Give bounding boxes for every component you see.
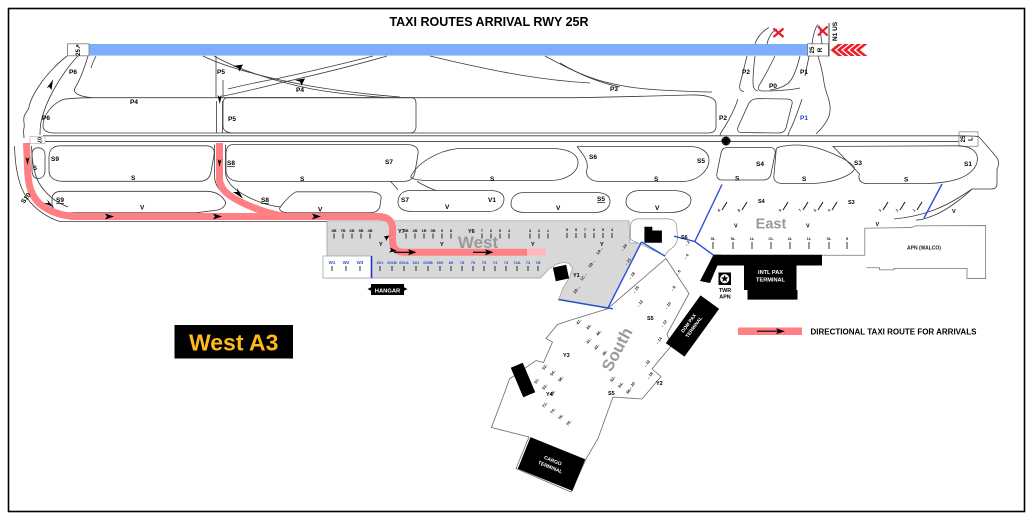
svg-text:1L: 1L	[750, 236, 755, 241]
svg-text:0L: 0L	[827, 236, 832, 241]
svg-text:S3: S3	[848, 200, 855, 206]
svg-text:West A3: West A3	[189, 330, 278, 356]
svg-text:6B: 6B	[349, 228, 354, 233]
svg-text:V: V	[140, 205, 145, 212]
svg-text:S: S	[131, 175, 136, 182]
svg-text:600: 600	[437, 260, 444, 265]
svg-text:4B: 4B	[367, 228, 372, 233]
svg-text:S9: S9	[51, 156, 59, 163]
svg-text:L: L	[969, 137, 975, 141]
svg-text:8B: 8B	[331, 228, 336, 233]
svg-text:Y1: Y1	[573, 273, 580, 279]
svg-text:V: V	[876, 222, 880, 228]
svg-text:S: S	[654, 176, 659, 183]
svg-text:601B: 601B	[387, 260, 397, 265]
svg-text:V: V	[655, 205, 660, 212]
svg-text:89: 89	[449, 260, 454, 265]
svg-text:Y2: Y2	[656, 381, 663, 387]
svg-text:V: V	[445, 204, 450, 211]
svg-text:Y7: Y7	[398, 229, 405, 235]
svg-text:P0: P0	[769, 83, 777, 90]
svg-text:600B: 600B	[423, 260, 433, 265]
svg-text:1L: 1L	[807, 236, 812, 241]
svg-text:S5: S5	[647, 316, 654, 322]
svg-text:P4: P4	[296, 87, 304, 94]
svg-text:TERMINAL: TERMINAL	[756, 278, 785, 284]
svg-text:S8: S8	[227, 160, 235, 167]
svg-text:9L: 9L	[711, 236, 716, 241]
svg-text:2B: 2B	[412, 228, 417, 233]
svg-text:East: East	[756, 217, 787, 233]
svg-text:S4: S4	[756, 161, 764, 168]
svg-text:73: 73	[504, 260, 509, 265]
svg-text:APN: APN	[719, 295, 730, 301]
svg-text:75: 75	[482, 260, 487, 265]
svg-text:S: S	[735, 176, 740, 183]
svg-text:P5: P5	[228, 116, 236, 123]
svg-text:P1: P1	[800, 115, 808, 122]
svg-text:P2: P2	[719, 115, 727, 122]
svg-text:S6: S6	[589, 154, 597, 161]
svg-text:V: V	[734, 224, 738, 230]
svg-text:S: S	[490, 176, 495, 183]
svg-text:Y: Y	[440, 242, 444, 248]
svg-text:S7: S7	[385, 159, 393, 166]
svg-text:P5: P5	[217, 69, 225, 76]
svg-text:V: V	[806, 224, 810, 230]
svg-text:CL: CL	[768, 236, 774, 241]
svg-text:S5: S5	[697, 158, 705, 165]
svg-text:5L: 5L	[731, 236, 736, 241]
svg-text:601: 601	[377, 260, 384, 265]
svg-text:S: S	[904, 177, 909, 184]
svg-text:V1: V1	[488, 197, 496, 204]
svg-text:601A: 601A	[399, 260, 409, 265]
svg-text:S3: S3	[854, 160, 862, 167]
svg-text:TWR: TWR	[719, 288, 731, 294]
svg-text:V: V	[556, 205, 561, 212]
svg-text:S: S	[300, 176, 305, 183]
svg-text:25↗: 25↗	[76, 44, 82, 56]
svg-text:Y4: Y4	[546, 392, 554, 398]
svg-text:TAXI ROUTES ARRIVAL RWY 25R: TAXI ROUTES ARRIVAL RWY 25R	[389, 15, 588, 29]
svg-text:S: S	[802, 176, 807, 183]
svg-text:S: S	[33, 166, 37, 172]
svg-text:P4: P4	[130, 99, 138, 106]
svg-text:S9: S9	[56, 197, 64, 204]
svg-text:73: 73	[526, 260, 531, 265]
svg-text:R: R	[817, 47, 824, 52]
svg-text:HANGAR: HANGAR	[375, 288, 401, 294]
svg-text:P3: P3	[610, 86, 618, 93]
svg-text:S1: S1	[964, 161, 972, 168]
svg-text:07: 07	[36, 137, 42, 143]
svg-text:7B: 7B	[535, 260, 540, 265]
svg-text:S7: S7	[401, 197, 409, 204]
svg-text:74: 74	[493, 260, 498, 265]
svg-text:Y: Y	[531, 242, 535, 248]
svg-text:74A: 74A	[513, 260, 520, 265]
svg-text:2L: 2L	[788, 236, 793, 241]
svg-text:5B: 5B	[358, 228, 363, 233]
svg-text:W1: W1	[329, 260, 336, 265]
svg-text:APN (WALCO): APN (WALCO)	[907, 246, 941, 252]
svg-text:W3: W3	[357, 260, 364, 265]
svg-text:0B: 0B	[430, 228, 435, 233]
svg-text:76: 76	[471, 260, 476, 265]
svg-text:P2: P2	[742, 69, 750, 76]
svg-text:V: V	[952, 209, 956, 215]
svg-text:P6: P6	[69, 69, 77, 76]
svg-text:7B: 7B	[340, 228, 345, 233]
svg-text:V: V	[318, 207, 323, 214]
svg-text:25: 25	[809, 46, 816, 53]
svg-text:Y: Y	[379, 242, 383, 248]
svg-text:78: 78	[460, 260, 465, 265]
svg-text:P6: P6	[42, 115, 50, 122]
svg-text:Y6: Y6	[468, 229, 475, 235]
svg-text:P1: P1	[800, 69, 808, 76]
svg-text:1B: 1B	[421, 228, 426, 233]
svg-text:S4: S4	[758, 199, 766, 205]
svg-text:Y3: Y3	[563, 353, 570, 359]
svg-text:S8: S8	[261, 197, 269, 204]
svg-text:DIRECTIONAL TAXI ROUTE FOR ARR: DIRECTIONAL TAXI ROUTE FOR ARRIVALS	[811, 327, 978, 336]
svg-text:S5: S5	[608, 391, 615, 397]
svg-text:601: 601	[413, 260, 420, 265]
svg-text:S5: S5	[597, 196, 605, 203]
svg-text:INTL PAX: INTL PAX	[758, 270, 783, 276]
svg-text:N1 US: N1 US	[832, 21, 839, 41]
svg-text:W2: W2	[343, 260, 350, 265]
